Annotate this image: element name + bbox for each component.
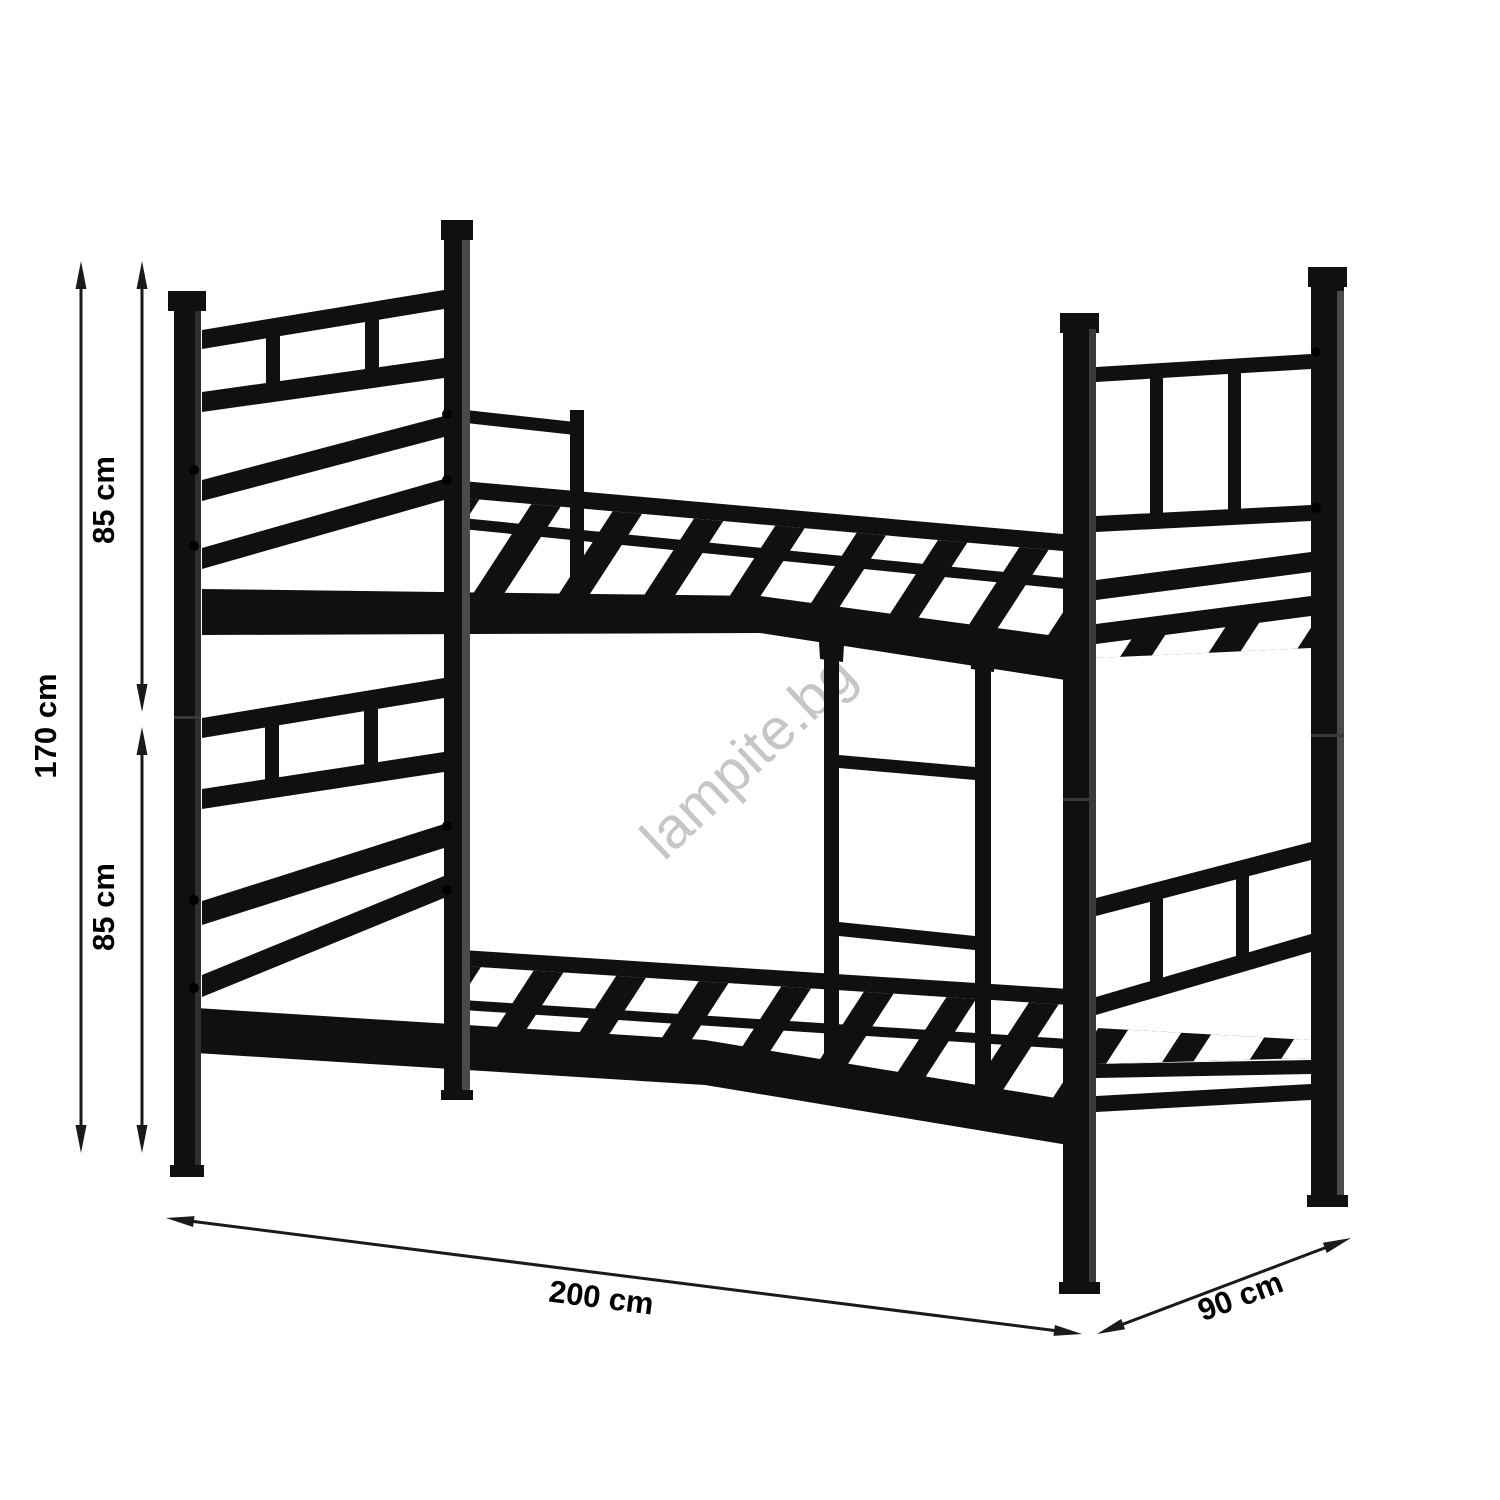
svg-text:85 cm: 85 cm [86, 863, 121, 951]
svg-text:200 cm: 200 cm [547, 1274, 656, 1322]
svg-text:85 cm: 85 cm [86, 456, 121, 544]
svg-text:170 cm: 170 cm [28, 673, 63, 778]
svg-text:90 cm: 90 cm [1193, 1264, 1288, 1328]
